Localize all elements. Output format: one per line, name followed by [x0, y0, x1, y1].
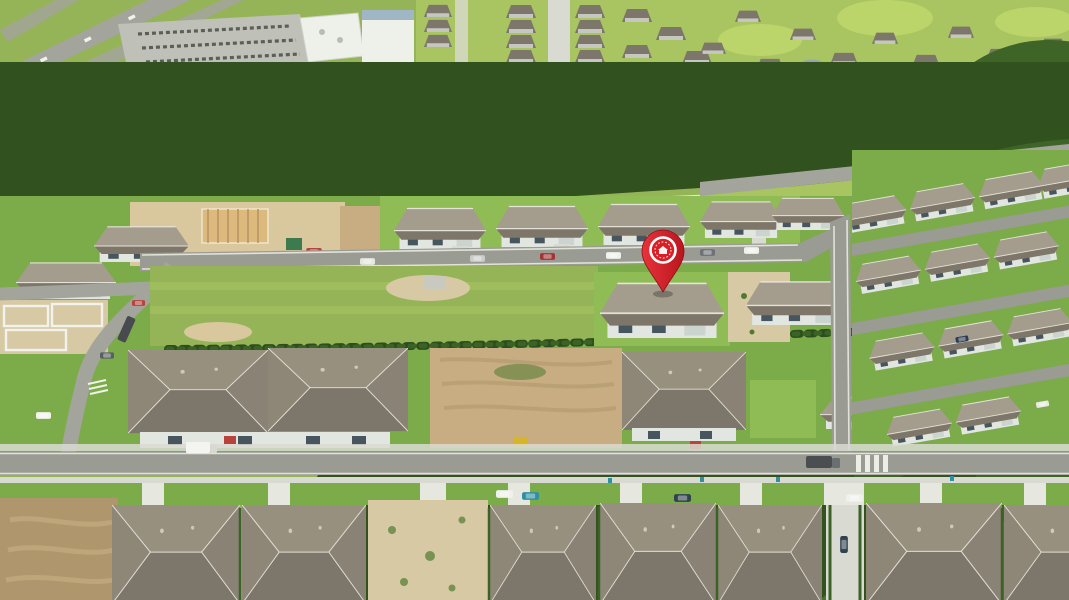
- side-lawn: [750, 380, 816, 438]
- lawn-patch: [837, 0, 933, 36]
- framed-house: [202, 209, 268, 243]
- house-unit: [496, 207, 588, 247]
- parked-car: [840, 536, 848, 553]
- central-field: [150, 266, 598, 346]
- house-unit: [700, 202, 782, 238]
- main-road: [0, 436, 1069, 505]
- large-roof: [128, 350, 268, 433]
- foreground-roof: [866, 503, 1002, 600]
- parked-car: [36, 412, 51, 419]
- lower-sidewalk: [0, 477, 1069, 483]
- construction-machine: [224, 436, 236, 444]
- second-row-home-right: [622, 352, 746, 441]
- foreground-roof: [242, 505, 366, 600]
- foreground-roof: [112, 505, 240, 600]
- foreground-roof: [1004, 505, 1069, 600]
- commercial-building: [300, 13, 364, 62]
- dirt-patch: [184, 322, 252, 342]
- house-unit: [394, 209, 486, 249]
- foreground-vacant-lot: [368, 500, 488, 600]
- rooftop-unit: [319, 29, 325, 35]
- second-row-homes: [128, 348, 408, 448]
- vertical-street: [830, 214, 852, 452]
- foreground-homes: [0, 498, 1069, 600]
- large-roof: [268, 348, 408, 431]
- main-road-surface: [0, 452, 1069, 475]
- office-building-glass: [362, 10, 414, 20]
- foreground-roof: [718, 505, 822, 600]
- aerial-photo-frame: [0, 0, 1069, 600]
- rooftop-unit: [337, 37, 343, 43]
- upper-sidewalk: [0, 444, 1069, 451]
- foreground-roof: [600, 503, 716, 600]
- lawn-patch: [718, 24, 802, 56]
- weed-patch: [494, 364, 546, 380]
- dumpster: [286, 238, 302, 250]
- aerial-community-photo: [0, 0, 1069, 600]
- truck: [100, 352, 114, 358]
- construction-vehicle: [132, 300, 145, 306]
- material-pad: [424, 276, 446, 289]
- shared-driveway: [826, 505, 864, 600]
- foreground-roof: [490, 505, 596, 600]
- large-roof: [622, 352, 746, 430]
